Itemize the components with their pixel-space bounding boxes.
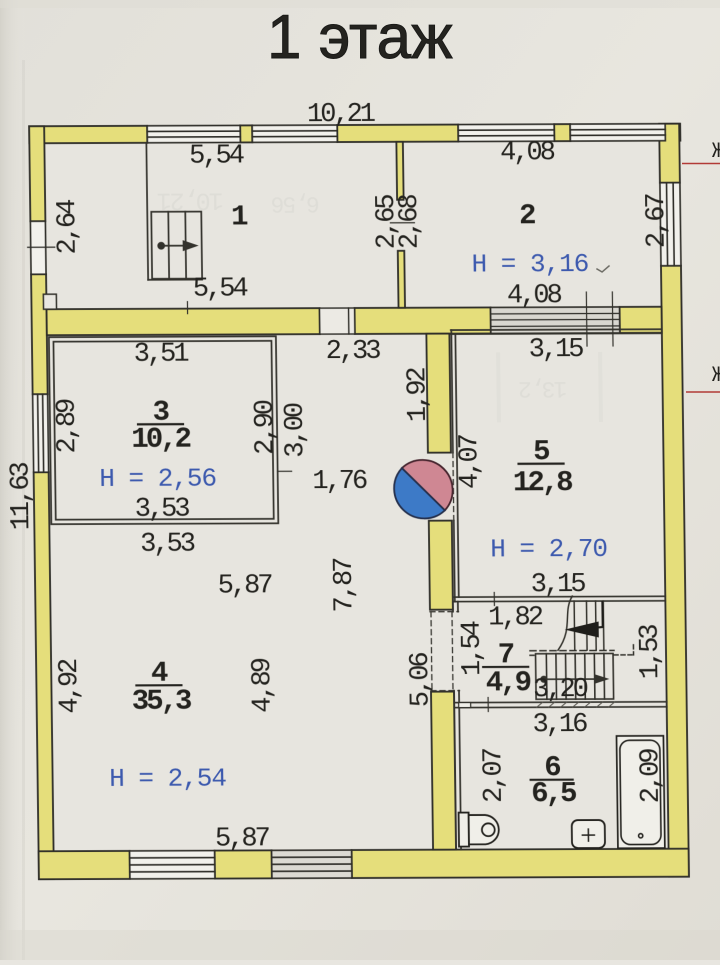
svg-text:2,09: 2,09 (636, 749, 667, 804)
svg-text:5,54: 5,54 (189, 141, 244, 171)
svg-text:6,5: 6,5 (531, 777, 576, 810)
svg-text:11,63: 11,63 (6, 462, 37, 530)
svg-text:1,53: 1,53 (636, 625, 667, 680)
svg-text:4,92: 4,92 (55, 659, 86, 714)
svg-text:1 этаж: 1 этаж (267, 3, 453, 72)
svg-text:2,64: 2,64 (53, 200, 84, 255)
svg-text:5,06: 5,06 (406, 652, 437, 707)
svg-text:Ж: Ж (712, 139, 720, 164)
svg-text:2,68: 2,68 (395, 194, 426, 249)
svg-text:H = 2,54: H = 2,54 (109, 764, 227, 794)
svg-text:2: 2 (519, 199, 535, 232)
svg-text:3,53: 3,53 (135, 495, 190, 525)
svg-text:3,53: 3,53 (140, 530, 195, 560)
svg-text:H = 2,70: H = 2,70 (490, 534, 607, 564)
svg-text:3,15: 3,15 (531, 570, 586, 600)
svg-text:4,07: 4,07 (455, 434, 486, 489)
svg-text:2,33: 2,33 (325, 337, 380, 367)
svg-text:H = 2,56: H = 2,56 (99, 464, 216, 494)
svg-text:7,87: 7,87 (330, 558, 361, 613)
svg-text:35,3: 35,3 (132, 685, 192, 718)
svg-text:Ж: Ж (712, 363, 720, 388)
svg-text:10,21: 10,21 (307, 100, 375, 130)
svg-text:1,92: 1,92 (403, 367, 434, 422)
svg-text:10,21: 10,21 (157, 185, 223, 214)
svg-text:2,67: 2,67 (642, 193, 673, 248)
svg-text:3,16: 3,16 (532, 710, 587, 740)
svg-text:3,00: 3,00 (281, 403, 312, 458)
svg-text:3,15: 3,15 (528, 335, 583, 365)
svg-text:6,56: 6,56 (271, 190, 320, 216)
svg-text:1,76: 1,76 (312, 467, 367, 497)
svg-text:H = 3,16: H = 3,16 (471, 249, 588, 279)
svg-text:13,2: 13,2 (519, 375, 568, 401)
svg-text:3,51: 3,51 (133, 340, 188, 370)
svg-text:10,2: 10,2 (131, 423, 191, 456)
svg-text:2,07: 2,07 (479, 748, 510, 803)
svg-text:2,89: 2,89 (53, 399, 84, 454)
svg-text:5,87: 5,87 (218, 571, 273, 601)
svg-text:1,82: 1,82 (488, 603, 543, 633)
svg-text:4,08: 4,08 (507, 281, 562, 311)
svg-text:4,08: 4,08 (500, 138, 555, 168)
svg-text:5,87: 5,87 (215, 824, 270, 854)
svg-text:4,9: 4,9 (486, 666, 531, 699)
svg-text:12,8: 12,8 (513, 466, 573, 499)
svg-text:2,90: 2,90 (251, 400, 282, 455)
svg-text:4,89: 4,89 (248, 658, 279, 713)
svg-text:3,20: 3,20 (533, 675, 588, 705)
svg-text:5,54: 5,54 (193, 274, 248, 304)
